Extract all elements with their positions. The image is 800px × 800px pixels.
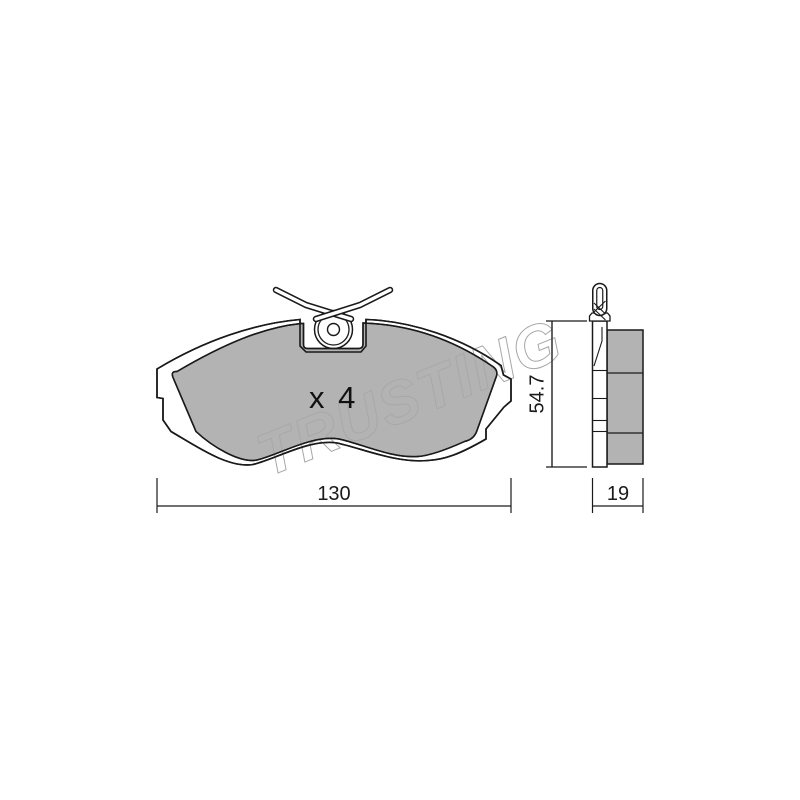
side-friction-material (607, 330, 643, 464)
side-backing-plate (593, 321, 608, 467)
drawing-page: 130 19 54.7 TRUSTING x 4 (0, 0, 800, 800)
piston-boss-hole (328, 324, 340, 336)
brake-pad-technical-drawing: 130 19 54.7 TRUSTING x 4 (0, 0, 800, 800)
side-view (590, 284, 644, 468)
quantity-label: x 4 (309, 380, 358, 415)
dim-thickness-label: 19 (607, 483, 629, 505)
dim-width-label: 130 (317, 483, 350, 505)
spring-clip (276, 290, 390, 319)
